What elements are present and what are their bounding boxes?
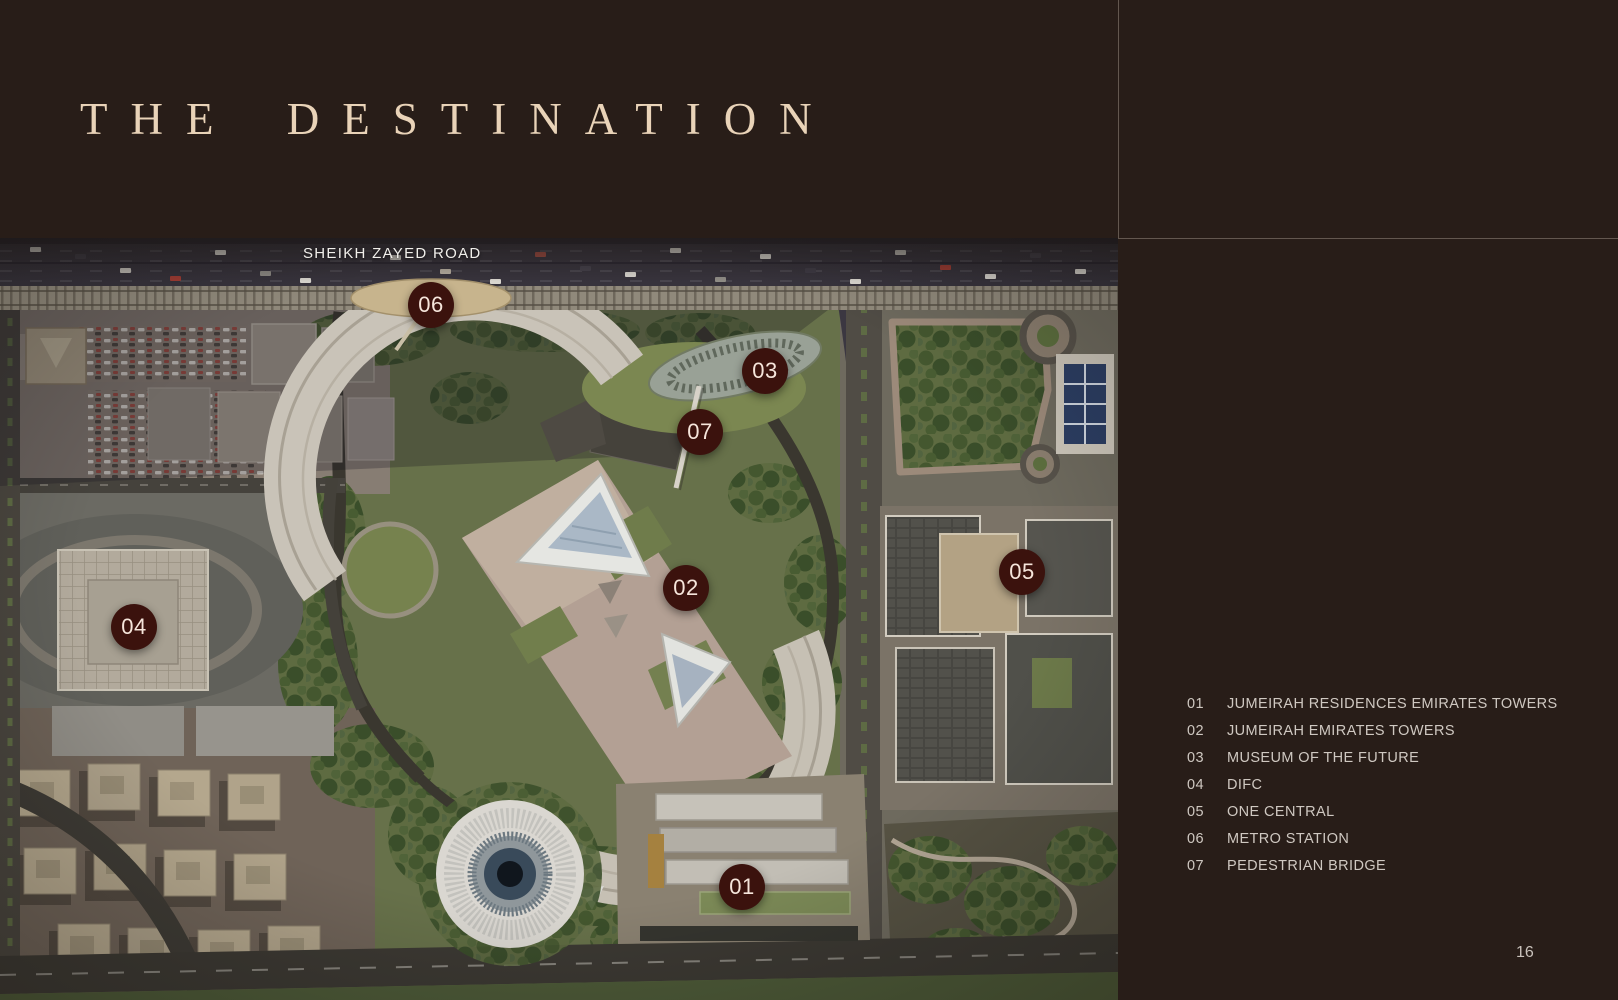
legend-item-label: JUMEIRAH RESIDENCES EMIRATES TOWERS [1227,696,1558,712]
site-map-illustration [0,238,1118,1000]
legend-item: 01JUMEIRAH RESIDENCES EMIRATES TOWERS [1187,690,1558,717]
legend-item-number: 04 [1187,777,1213,793]
legend-item-number: 06 [1187,831,1213,847]
page-title: THE DESTINATION [80,93,835,145]
legend-item-number: 07 [1187,858,1213,874]
legend-item: 05ONE CENTRAL [1187,798,1558,825]
legend-item: 07PEDESTRIAN BRIDGE [1187,852,1558,879]
divider-vertical [1118,0,1119,238]
legend-item-label: DIFC [1227,777,1262,793]
legend-item: 02JUMEIRAH EMIRATES TOWERS [1187,717,1558,744]
brochure-page: THE DESTINATION [0,0,1618,1000]
map-legend: 01JUMEIRAH RESIDENCES EMIRATES TOWERS 02… [1187,690,1558,879]
legend-item-number: 05 [1187,804,1213,820]
legend-item-label: PEDESTRIAN BRIDGE [1227,858,1386,874]
legend-item: 04DIFC [1187,771,1558,798]
divider-horizontal [1118,238,1618,239]
legend-item-number: 02 [1187,723,1213,739]
legend-item-label: JUMEIRAH EMIRATES TOWERS [1227,723,1455,739]
legend-item-label: METRO STATION [1227,831,1349,847]
legend-item-number: 03 [1187,750,1213,766]
legend-item-label: MUSEUM OF THE FUTURE [1227,750,1419,766]
road-label: SHEIKH ZAYED ROAD [303,245,482,262]
legend-item-number: 01 [1187,696,1213,712]
legend-item: 06METRO STATION [1187,825,1558,852]
page-number: 16 [1516,944,1534,962]
site-map: SHEIKH ZAYED ROAD [0,238,1118,1000]
legend-item-label: ONE CENTRAL [1227,804,1335,820]
legend-item: 03MUSEUM OF THE FUTURE [1187,744,1558,771]
